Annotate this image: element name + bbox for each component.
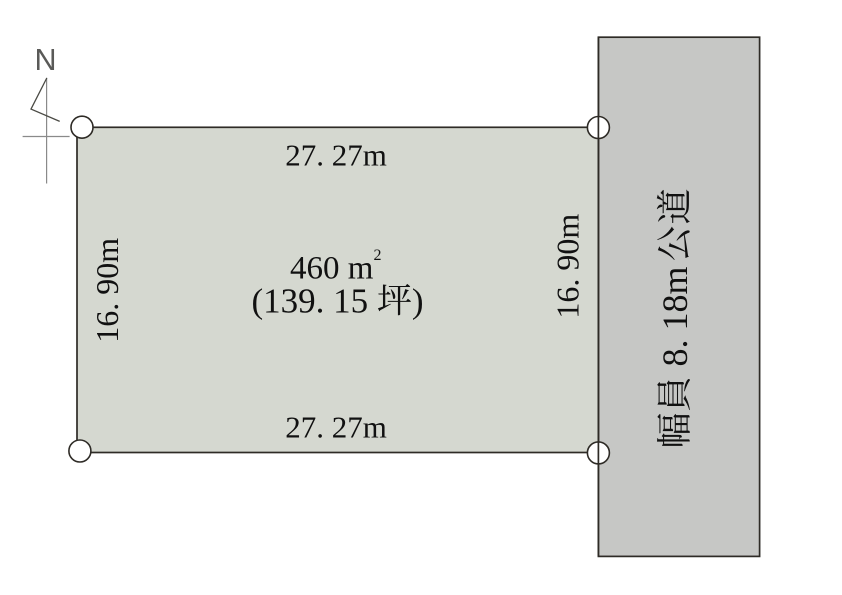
svg-text:27. 27m: 27. 27m <box>285 138 387 173</box>
svg-text:N: N <box>35 43 57 77</box>
svg-text:): ) <box>412 282 424 321</box>
svg-text:27. 27m: 27. 27m <box>285 410 387 445</box>
svg-text:8. 18m: 8. 18m <box>655 266 695 366</box>
svg-text:2: 2 <box>374 247 382 264</box>
svg-text:16. 90m: 16. 90m <box>550 214 586 319</box>
svg-text:(139. 15: (139. 15 <box>252 282 369 321</box>
svg-text:16. 90m: 16. 90m <box>89 238 125 343</box>
